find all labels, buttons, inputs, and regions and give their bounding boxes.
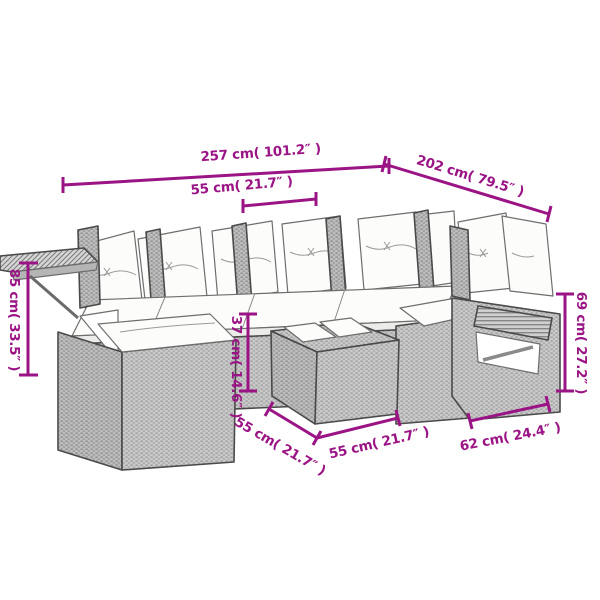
sofa-illustration: [0, 210, 560, 470]
footstool: [271, 318, 399, 424]
sofa-dimension-svg: 257 cm( 101.2″ ) 55 cm( 21.7″ ) 202 cm( …: [0, 0, 600, 600]
label-footstool-width: 55 cm( 21.7″ ): [327, 424, 431, 463]
label-overall-depth: 202 cm( 79.5″ ): [415, 152, 526, 200]
label-side-height: 69 cm( 27.2″ ): [573, 292, 589, 395]
label-overall-width: 257 cm( 101.2″ ): [200, 141, 322, 165]
flap-support: [30, 276, 78, 318]
dimension-diagram: 257 cm( 101.2″ ) 55 cm( 21.7″ ) 202 cm( …: [0, 0, 600, 600]
label-corner-depth: 62 cm( 24.4″ ): [458, 419, 562, 454]
label-total-height: 85 cm( 33.5″ ): [6, 269, 22, 372]
dim-seat-width: [243, 192, 316, 213]
label-footstool-height: 37 cm( 14.6″ ): [228, 316, 244, 419]
